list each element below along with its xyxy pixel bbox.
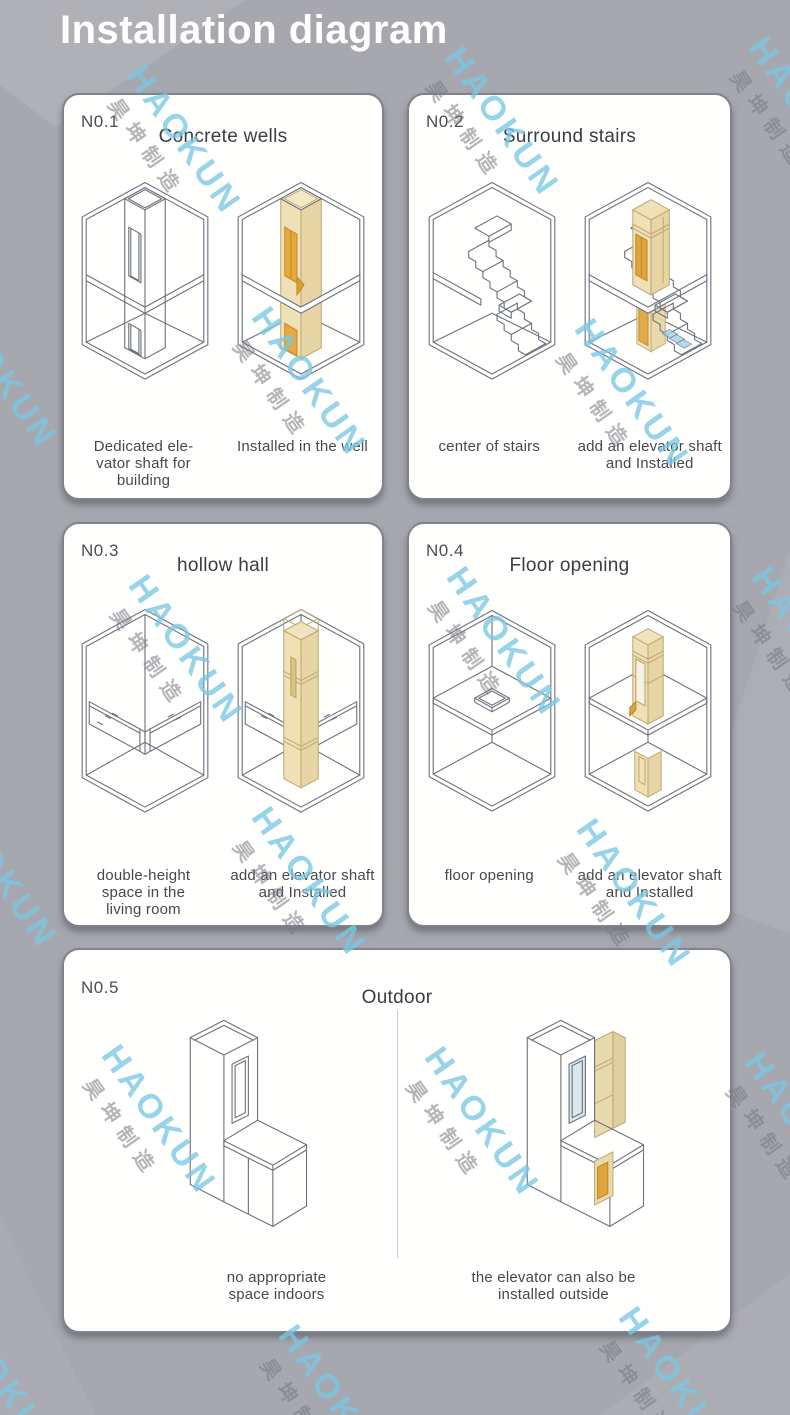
caption: add an elevator shaft and Installed [223, 868, 382, 902]
drawing-stairs-with-elevator [572, 173, 724, 426]
captions-row: no appropriate space indoors the elevato… [64, 1270, 730, 1304]
installation-diagram-page: Installation diagram N0.1 Concrete wells [0, 0, 790, 1415]
captions-row: floor opening add an elevator shaft and … [409, 868, 730, 902]
card-title: hollow hall [64, 555, 382, 577]
drawings-row [64, 173, 382, 426]
card-title: Surround stairs [409, 126, 730, 148]
watermark: HAOKUN昊坤制造 [0, 792, 65, 973]
card-outdoor: N0.5 Outdoor [62, 948, 732, 1333]
drawing-outdoor-no-space [127, 1006, 331, 1261]
drawing-outdoor-installed [464, 1006, 668, 1261]
card-title: Concrete wells [64, 126, 382, 148]
drawing-hollow-hall-empty [69, 602, 221, 855]
drawing-floor-opening-empty [416, 602, 568, 855]
drawing-stairs-empty [416, 173, 568, 426]
caption: add an elevator shaft and Installed [570, 439, 731, 473]
caption: add an elevator shaft and Installed [570, 868, 731, 902]
drawings-row [409, 173, 730, 426]
card-title: Floor opening [409, 555, 730, 577]
card-floor-opening: N0.4 Floor opening [407, 522, 732, 927]
drawing-installed-in-the-well [225, 173, 377, 426]
watermark: HAOKUN昊坤制造 [0, 292, 65, 473]
card-hollow-hall: N0.3 hollow hall [62, 522, 384, 927]
drawings-row [64, 602, 382, 855]
drawing-dedicated-elevator-shaft [69, 173, 221, 426]
caption: double-height space in the living room [64, 868, 223, 919]
caption: Installed in the well [223, 439, 382, 456]
drawing-hollow-hall-with-elevator [225, 602, 377, 855]
caption: the elevator can also be installed outsi… [387, 1270, 720, 1304]
captions-row: Dedicated ele- vator shaft for building … [64, 439, 382, 490]
drawings-row [64, 1006, 730, 1261]
watermark: HAOKUN昊坤制造 [0, 1302, 69, 1415]
caption: Dedicated ele- vator shaft for building [64, 439, 223, 490]
drawings-row [409, 602, 730, 855]
captions-row: center of stairs add an elevator shaft a… [409, 439, 730, 473]
drawing-floor-opening-with-elevator [572, 602, 724, 855]
card-surround-stairs: N0.2 Surround stairs [407, 93, 732, 500]
caption: floor opening [409, 868, 570, 885]
card-concrete-wells: N0.1 Concrete wells [62, 93, 384, 500]
captions-row: double-height space in the living room a… [64, 868, 382, 919]
page-title: Installation diagram [60, 8, 448, 53]
caption: center of stairs [409, 439, 570, 456]
